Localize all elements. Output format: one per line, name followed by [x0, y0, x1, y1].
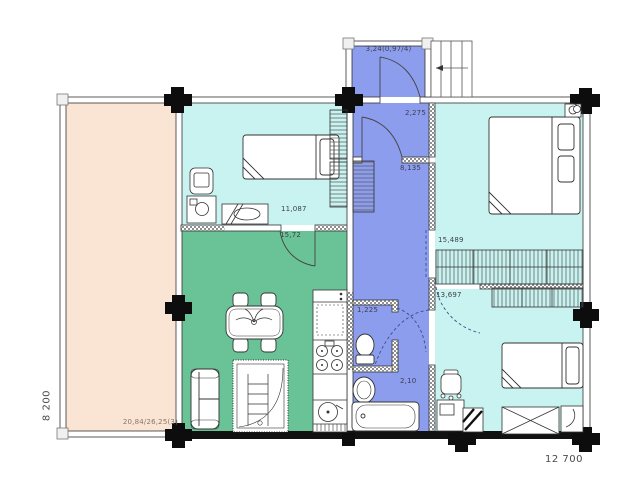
wash-basin	[353, 377, 375, 403]
wardrobe-bottom-right	[492, 288, 583, 307]
wardrobe-top-right	[436, 250, 583, 284]
sofa	[191, 369, 219, 429]
desk-and-chair-top-left	[187, 168, 216, 223]
dimension-depth: 8 200	[42, 376, 53, 436]
floor-mat	[463, 408, 483, 432]
label-bath-area: 2,10	[400, 377, 426, 385]
label-bedroom-top-right-area: 15,489	[438, 236, 474, 244]
toilet	[356, 334, 374, 364]
bathtub	[352, 402, 419, 431]
storage-chest	[502, 407, 559, 434]
label-bedroom-bottom-right-area: 13,697	[436, 291, 472, 299]
entrance-steps	[431, 41, 472, 97]
office-chair	[441, 370, 461, 400]
double-bed	[489, 117, 580, 214]
single-bed-bottom-right	[502, 343, 583, 388]
dresser-top-left	[222, 204, 268, 224]
label-vestibule-area: 3,24(0,97/4)	[352, 45, 425, 53]
floor-plan-canvas: 3,24(0,97/4) 2,275 8,135 11,087 15,72 15…	[0, 0, 642, 502]
label-living-area: 15,72	[280, 231, 308, 239]
rug-with-ladder	[233, 360, 288, 432]
dining-table	[226, 293, 283, 352]
dimension-width: 12 700	[545, 454, 583, 465]
label-terrace-area: 20,84/26,25(3)	[92, 418, 178, 426]
wardrobe-top-left	[330, 110, 347, 207]
single-bed-top-left	[243, 135, 339, 179]
label-wc-area: 1,225	[357, 306, 383, 314]
label-corridor-area: 8,135	[400, 164, 428, 172]
label-hall-area: 2,275	[390, 109, 426, 117]
kitchen-counter	[313, 290, 347, 432]
desk-bottom-right	[437, 400, 464, 431]
label-bedroom-top-left-area: 11,087	[281, 205, 313, 213]
side-table	[561, 406, 583, 432]
plan-drawing	[0, 0, 642, 502]
corridor-wardrobe	[353, 161, 374, 212]
